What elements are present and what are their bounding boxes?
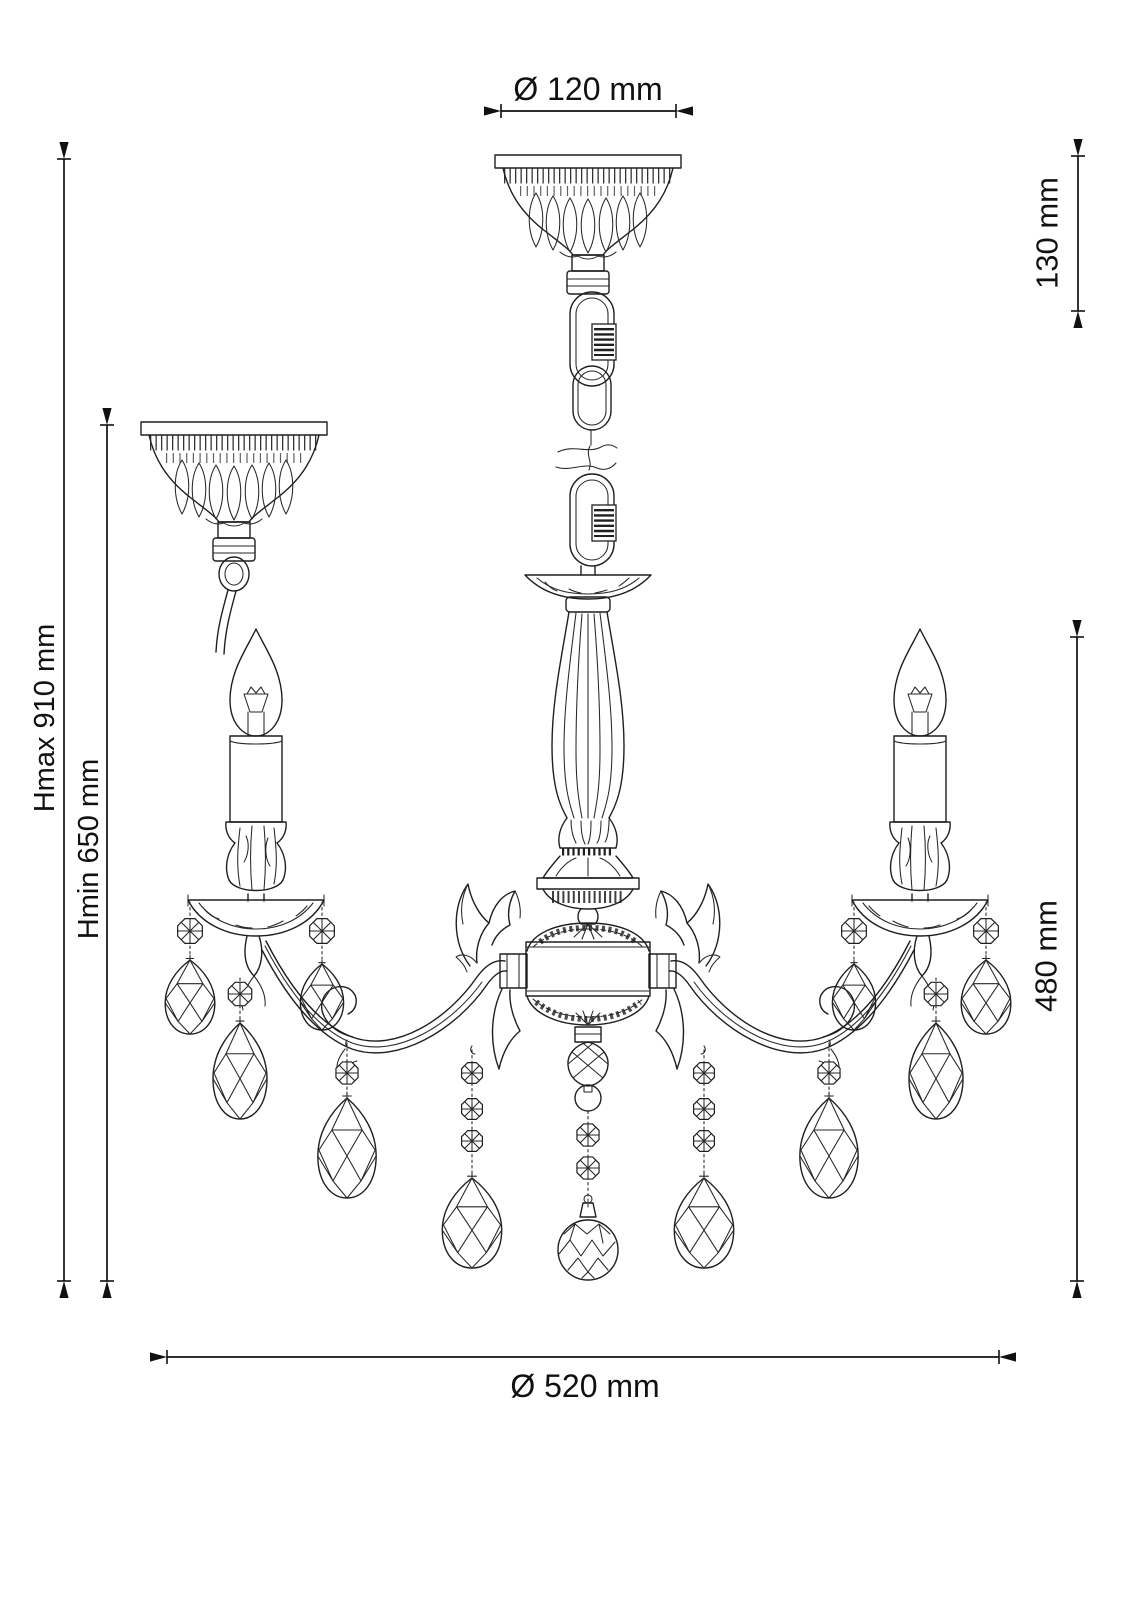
dim-height-max: Hmax 910 mm bbox=[29, 159, 64, 1281]
dim-fixture-height: 480 mm bbox=[1029, 637, 1078, 1281]
drawing-canvas: Ø 120 mm 130 mm Hmax 910 mm Hmin 650 mm … bbox=[0, 0, 1131, 1600]
dim-fixture-diameter: Ø 520 mm bbox=[167, 1357, 999, 1404]
dim-canopy-height-label: 130 mm bbox=[1030, 177, 1065, 289]
dim-fixture-diameter-label: Ø 520 mm bbox=[510, 1368, 659, 1404]
left-arm-assembly bbox=[165, 629, 520, 1268]
dim-height-min-label: Hmin 650 mm bbox=[73, 759, 105, 940]
dim-height-max-label: Hmax 910 mm bbox=[29, 624, 61, 813]
chandelier-technical-drawing: Ø 120 mm 130 mm Hmax 910 mm Hmin 650 mm … bbox=[0, 0, 1131, 1600]
dim-fixture-height-label: 480 mm bbox=[1029, 900, 1064, 1012]
column-top-bobeche bbox=[525, 575, 651, 599]
center-body bbox=[500, 923, 676, 1025]
right-arm-assembly bbox=[656, 629, 1011, 1268]
center-column bbox=[537, 597, 639, 924]
ceiling-canopy bbox=[495, 155, 681, 294]
chain-break-symbol bbox=[556, 445, 617, 470]
dim-height-min: Hmin 650 mm bbox=[73, 425, 107, 1281]
canopy-detail-hmin bbox=[141, 422, 327, 561]
dim-canopy-height: 130 mm bbox=[1030, 156, 1079, 311]
dim-canopy-diameter: Ø 120 mm bbox=[501, 71, 676, 111]
dim-canopy-diameter-label: Ø 120 mm bbox=[513, 71, 662, 107]
faceted-ball-crystal bbox=[558, 1220, 618, 1280]
canopy-detail-loop bbox=[216, 557, 249, 654]
smooth-ball-crystal bbox=[575, 1085, 601, 1111]
center-finial-drop bbox=[558, 1027, 618, 1280]
suspension-chain bbox=[556, 292, 617, 575]
